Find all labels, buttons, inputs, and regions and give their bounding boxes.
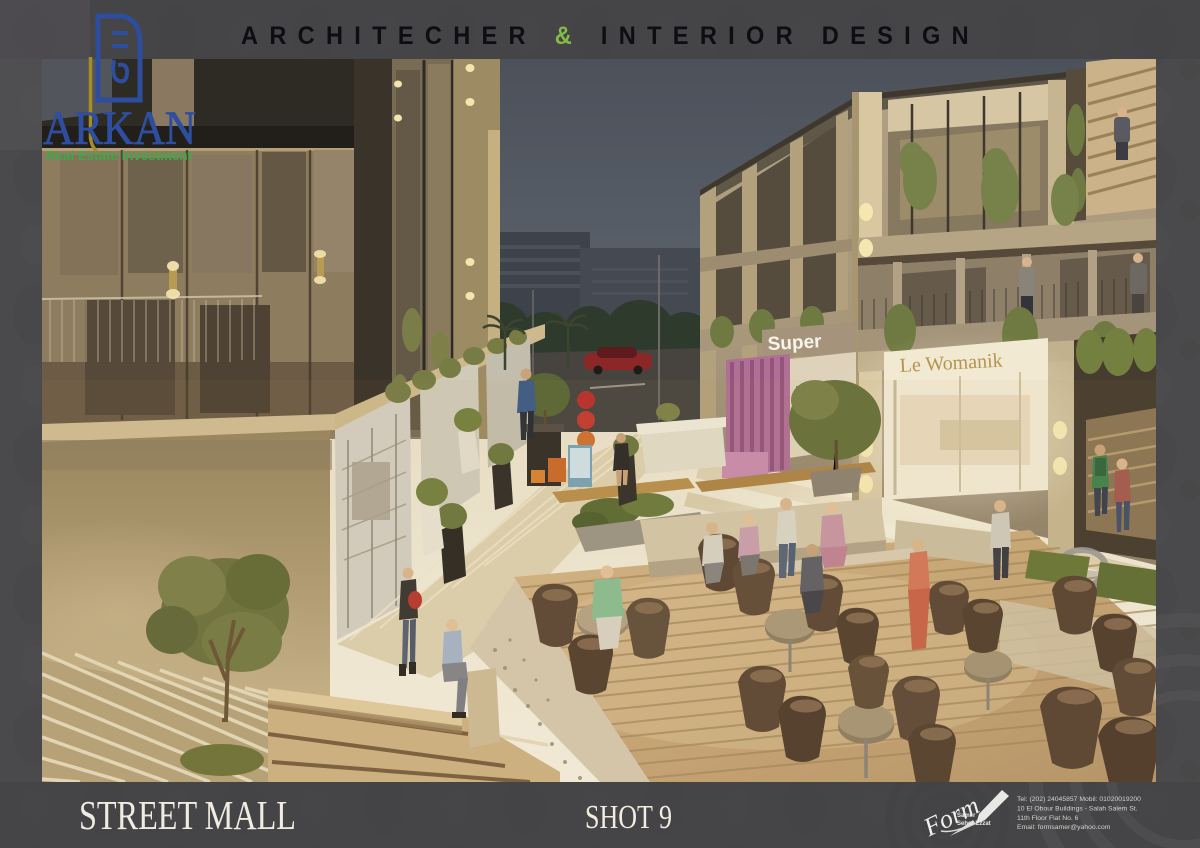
- svg-text:Real Estate Investment: Real Estate Investment: [46, 149, 193, 163]
- svg-text:SHOT 9: SHOT 9: [585, 799, 672, 836]
- svg-text:ARKAN: ARKAN: [43, 102, 196, 155]
- svg-text:ARCHITECHER & INTERIOR DESIGN: ARCHITECHER & INTERIOR DESIGN: [241, 22, 980, 50]
- svg-text:Seher Ezzat: Seher Ezzat: [957, 821, 991, 827]
- svg-text:Super: Super: [767, 331, 822, 355]
- svg-text:11th Floor Flat No. 6: 11th Floor Flat No. 6: [1017, 815, 1079, 822]
- svg-text:Tel: (202) 24045857 Mobil: 0: Tel: (202) 24045857 Mobil: 01020019200: [1017, 796, 1141, 803]
- svg-text:STREET MALL: STREET MALL: [79, 792, 296, 838]
- svg-text:Samer: Samer: [957, 813, 976, 819]
- svg-text:Email: formsamer@yahoo.com: Email: formsamer@yahoo.com: [1017, 824, 1111, 831]
- svg-text:10 El Obour Buildings - S: 10 El Obour Buildings - Salah Salem St.: [1017, 806, 1138, 813]
